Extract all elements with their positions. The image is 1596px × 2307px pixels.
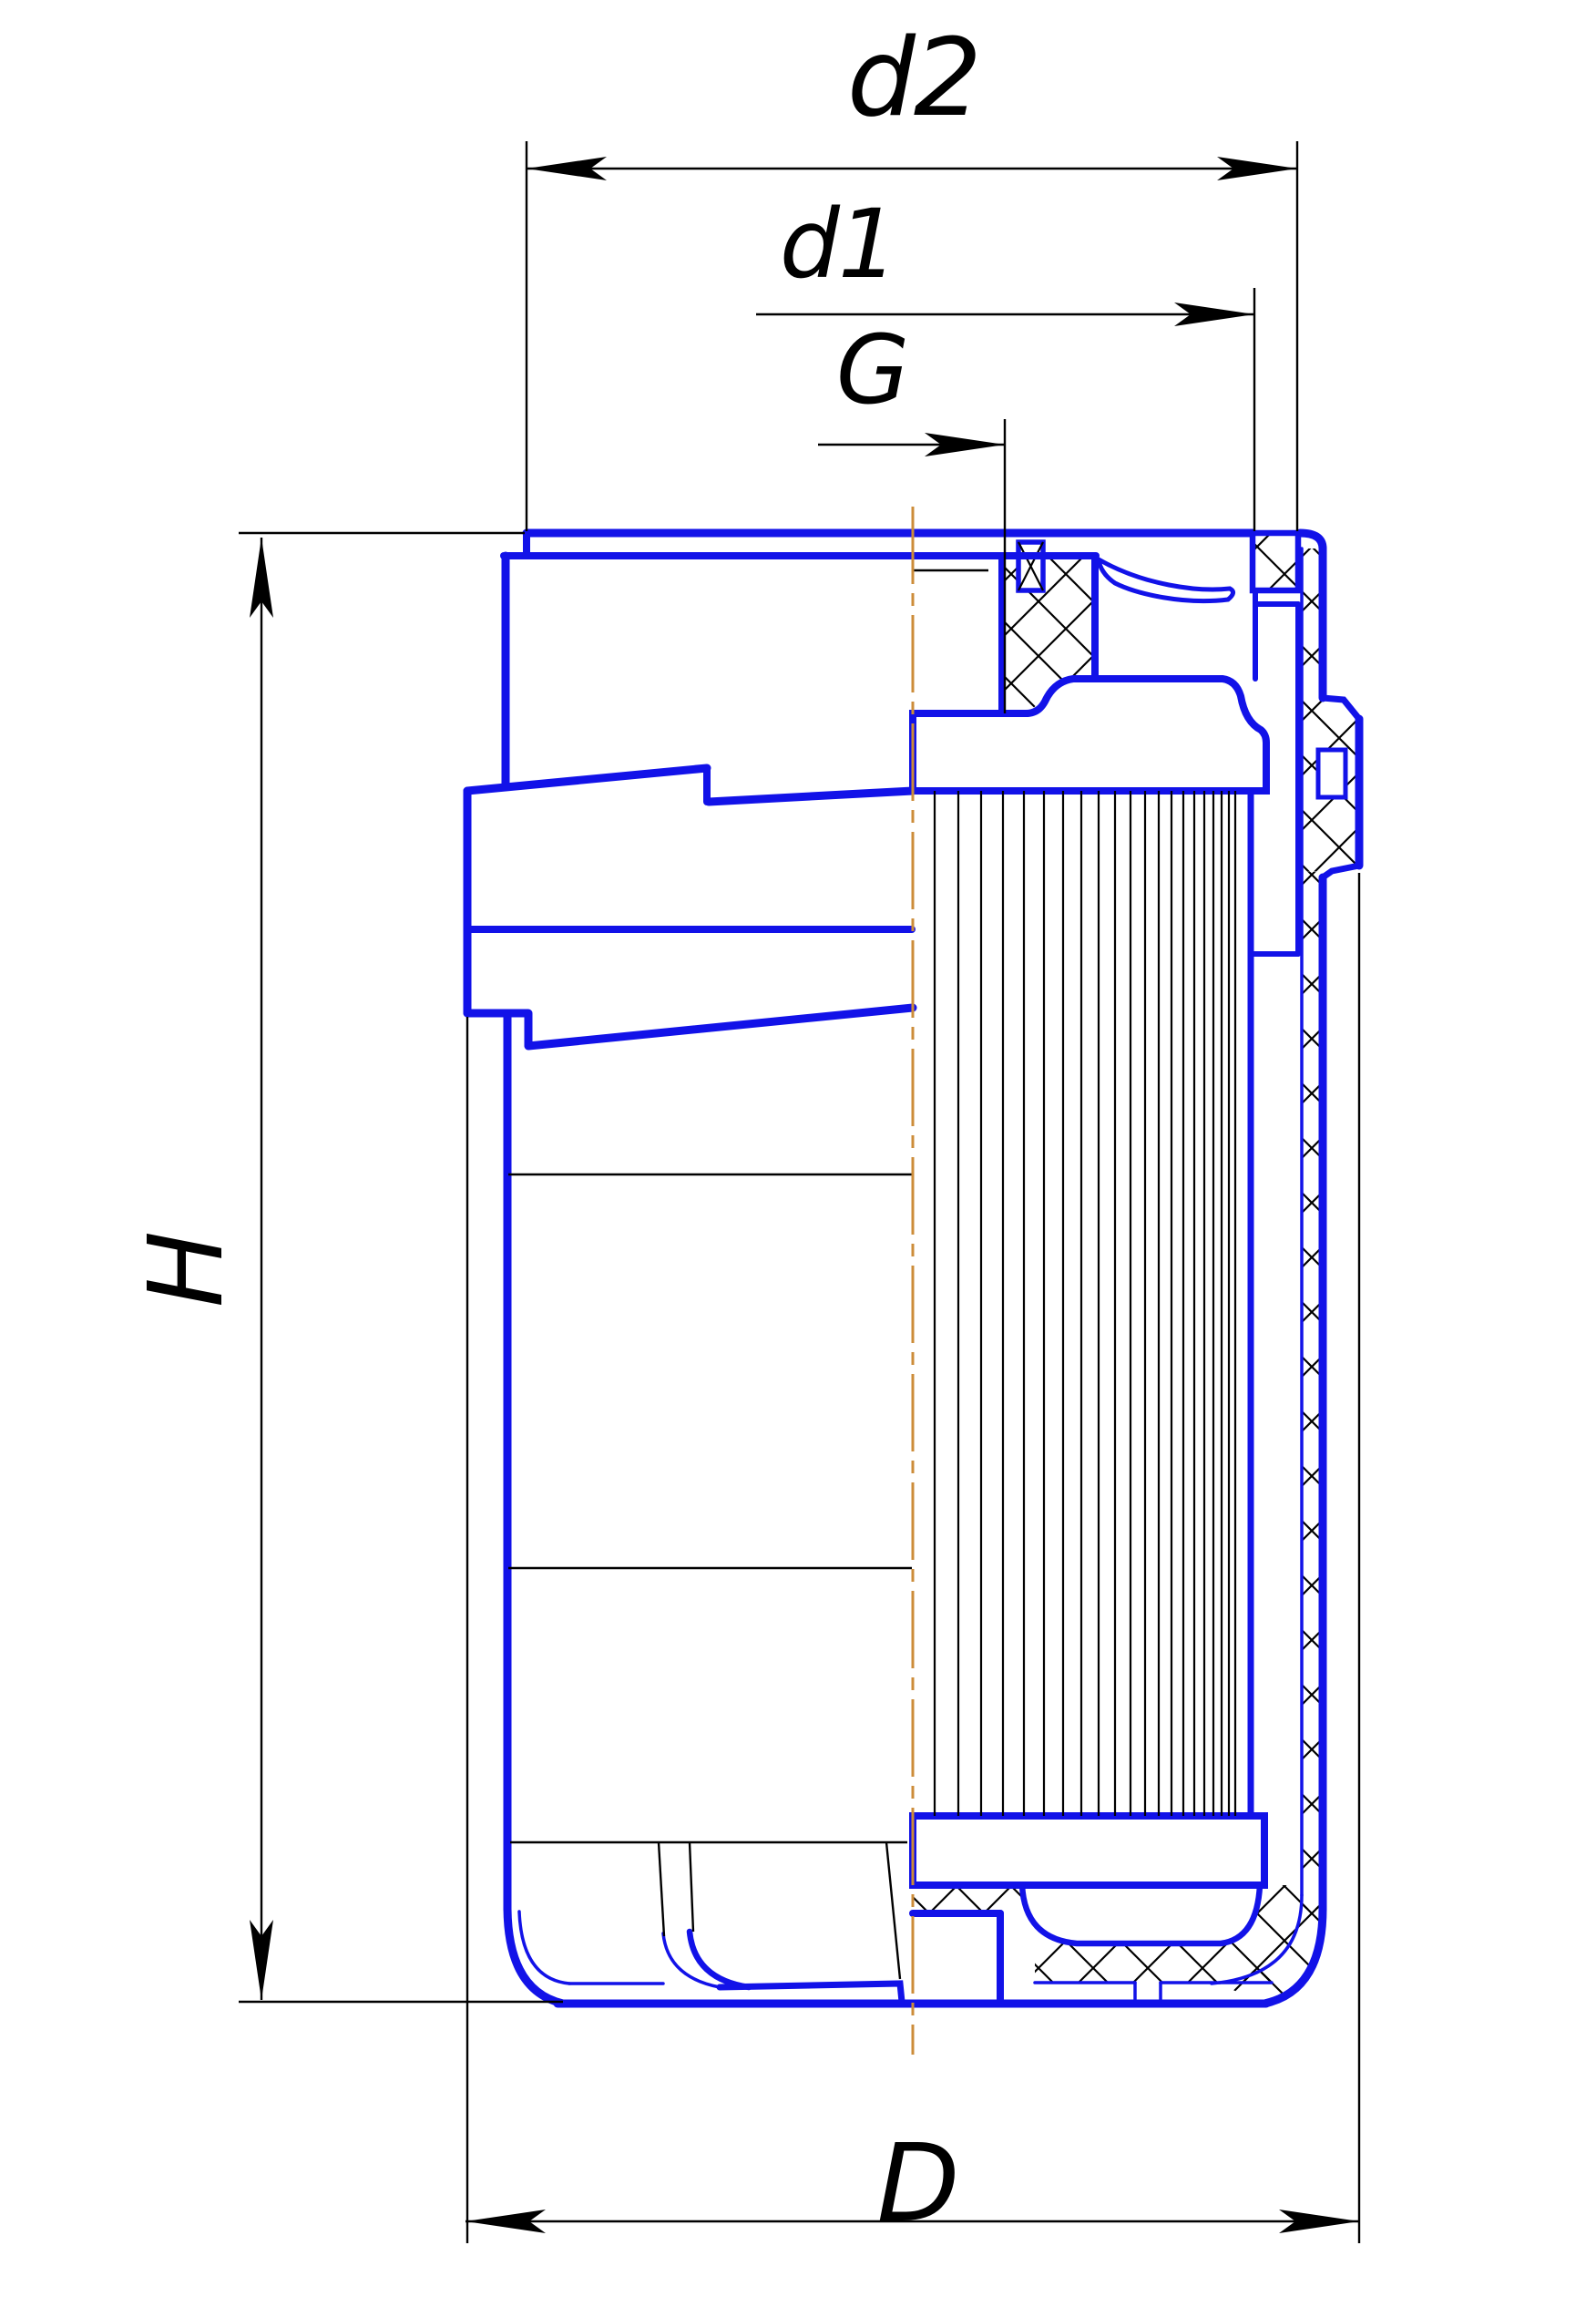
technical-drawing-filter-cross-section: d2 d1 G H D	[0, 0, 1596, 2307]
band-bottom	[467, 1008, 913, 1046]
element-bottom-end-plate	[913, 1816, 1264, 1885]
dimension-label-h: H	[136, 1233, 238, 1307]
pleated-media	[935, 791, 1235, 1816]
panel-seam	[1135, 1983, 1161, 2001]
element-top-end-plate	[913, 679, 1266, 791]
dome-edge-2	[690, 1842, 693, 1932]
inner-corner-left	[519, 1912, 569, 1984]
filter-section-drawing	[0, 0, 1596, 2307]
dome-curve-thick	[690, 1932, 749, 1987]
bottom-corner-left	[507, 1909, 563, 2004]
band-top-right	[709, 791, 913, 802]
white-overlays	[913, 542, 1345, 1943]
hatch-top-right-block	[1253, 533, 1298, 590]
anti-drainback-valve	[1099, 559, 1233, 601]
dome-edge-3	[886, 1842, 900, 1979]
top-corner-right	[1300, 533, 1323, 549]
dimension-label-d: D	[877, 2129, 958, 2237]
snap-ring-groove	[1318, 750, 1345, 797]
dimension-label-d2: d2	[847, 24, 980, 131]
dome-edge-1	[659, 1842, 664, 1936]
bottom-bowl	[1022, 1885, 1260, 1943]
inner-bottom-diagonal	[720, 1984, 902, 2002]
dimension-label-g: G	[836, 323, 908, 417]
dimension-label-d1: d1	[780, 197, 896, 292]
hatch-tube-seal	[913, 1885, 1025, 1913]
